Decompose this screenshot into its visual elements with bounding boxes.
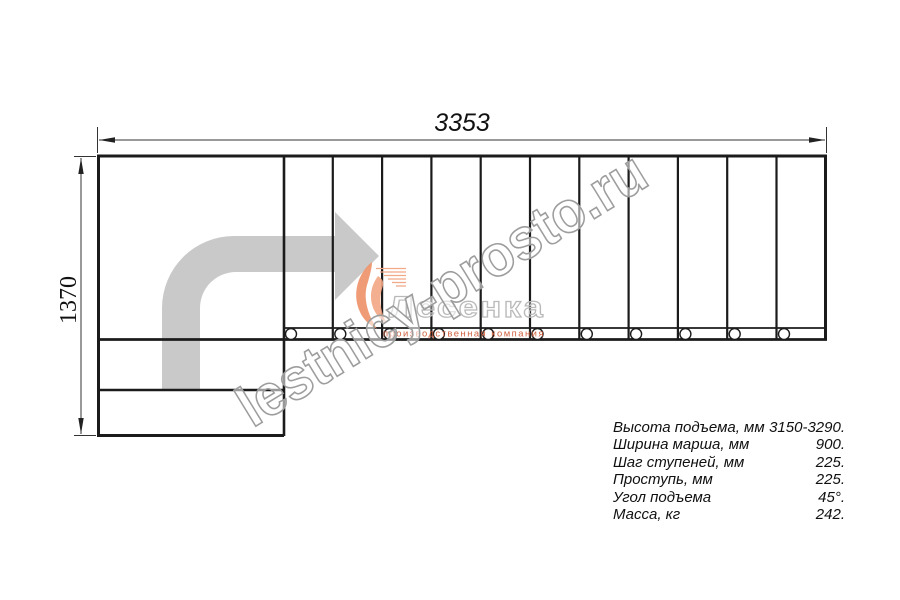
spec-row: Высота подъема, мм 3150-3290. — [613, 419, 845, 436]
baluster-circle — [729, 329, 740, 340]
baluster-circle — [286, 329, 297, 340]
spec-row: Шаг ступеней, мм 225. — [613, 454, 845, 471]
spec-row: Ширина марша, мм 900. — [613, 436, 845, 453]
spec-value: 225. — [816, 454, 845, 471]
spec-value: 45°. — [818, 489, 845, 506]
spec-label: Масса, кг — [613, 506, 680, 523]
stair-plan-screenshot: 3353 1370 Лесенка производственна — [0, 0, 900, 600]
dimension-arrowhead — [78, 158, 83, 174]
spec-table: Высота подъема, мм 3150-3290. Ширина мар… — [613, 419, 845, 523]
site-watermark: lestnicy-prosto.ru — [225, 139, 658, 439]
dimension-arrowhead — [78, 418, 83, 434]
top-dimension: 3353 — [98, 109, 827, 153]
spec-row: Угол подъема 45°. — [613, 489, 845, 506]
baluster-circle — [680, 329, 691, 340]
spec-row: Масса, кг 242. — [613, 506, 845, 523]
baluster-circle — [631, 329, 642, 340]
left-dimension: 1370 — [56, 157, 96, 436]
spec-label: Высота подъема, мм — [613, 419, 765, 436]
spec-value: 225. — [816, 471, 845, 488]
spec-label: Угол подъема — [613, 489, 711, 506]
spec-label: Ширина марша, мм — [613, 436, 749, 453]
height-dimension-label: 1370 — [56, 276, 82, 324]
spec-label: Шаг ступеней, мм — [613, 454, 744, 471]
dimension-arrowhead — [809, 137, 825, 142]
site-watermark-text: lestnicy-prosto.ru — [225, 139, 658, 439]
baluster-circle — [779, 329, 790, 340]
spec-value: 3150-3290. — [769, 419, 845, 436]
spec-value: 900. — [816, 436, 845, 453]
width-dimension-label: 3353 — [434, 109, 490, 137]
spec-label: Проступь, мм — [613, 471, 713, 488]
dimension-arrowhead — [99, 137, 115, 142]
spec-value: 242. — [816, 506, 845, 523]
spec-row: Проступь, мм 225. — [613, 471, 845, 488]
baluster-circle — [581, 329, 592, 340]
